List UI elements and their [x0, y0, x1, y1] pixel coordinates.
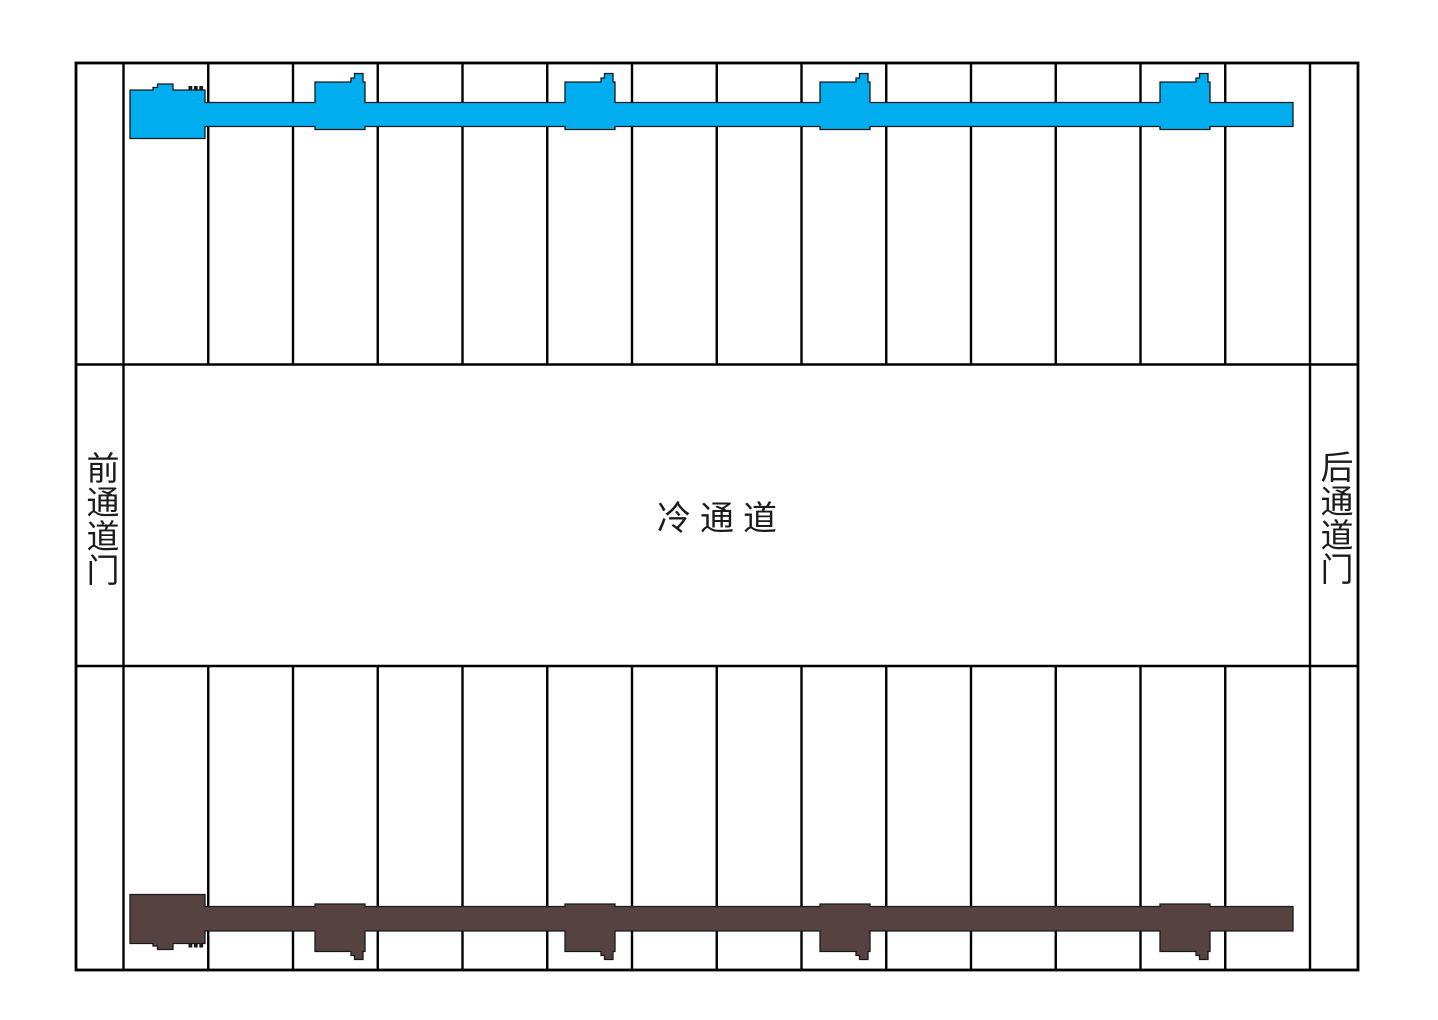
- busbar-connector-tab: [189, 943, 193, 947]
- rear-door-label: 后通道门: [1317, 450, 1351, 586]
- busbar-connector-tab: [199, 943, 203, 947]
- bottom-busbar-shape: [130, 895, 1293, 960]
- top-busbar-assembly: [130, 74, 1293, 139]
- front-door-label: 前通道门: [83, 451, 117, 587]
- busbar-connector-tab: [189, 86, 193, 90]
- cold-aisle-layout-diagram: 前通道门 冷通道 后通道门: [0, 0, 1438, 1020]
- busbar-connector-tab: [194, 943, 198, 947]
- busbar-connector-tab: [199, 86, 203, 90]
- busbar-connector-tab: [194, 86, 198, 90]
- cold-aisle-label: 冷通道: [124, 365, 1310, 666]
- top-busbar-shape: [130, 74, 1293, 139]
- bottom-busbar-assembly: [130, 895, 1293, 960]
